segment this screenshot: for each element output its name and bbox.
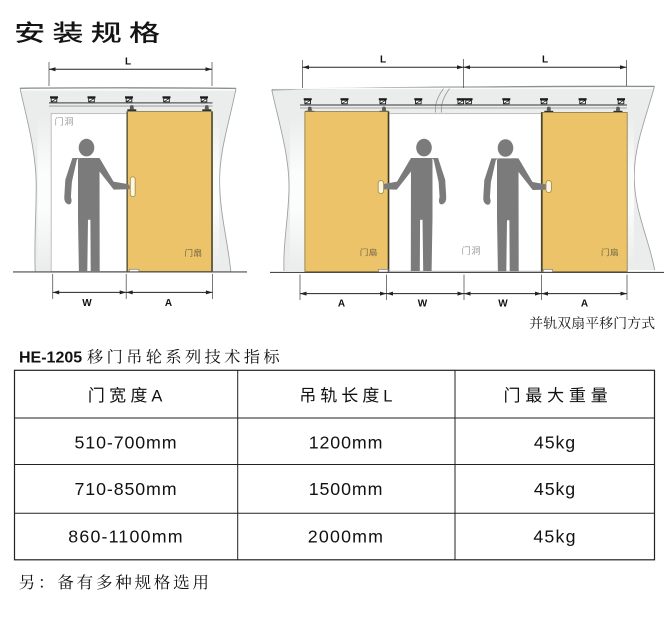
svg-text:L: L	[542, 55, 548, 66]
svg-text:W: W	[82, 298, 92, 309]
svg-text:2000mm: 2000mm	[308, 526, 384, 546]
svg-text:W: W	[498, 299, 508, 310]
svg-text:510-700mm: 510-700mm	[75, 432, 178, 452]
svg-text:1200mm: 1200mm	[309, 432, 384, 452]
svg-text:45kg: 45kg	[534, 432, 576, 452]
svg-text:A: A	[151, 387, 162, 405]
svg-text:L: L	[380, 55, 386, 66]
svg-text:710-850mm: 710-850mm	[75, 479, 178, 499]
svg-text:A: A	[338, 299, 345, 310]
svg-text:1500mm: 1500mm	[309, 479, 384, 499]
svg-text:45kg: 45kg	[533, 526, 576, 546]
svg-text:45kg: 45kg	[534, 479, 576, 499]
svg-text:W: W	[418, 299, 428, 310]
svg-text:L: L	[383, 387, 392, 405]
svg-text:HE-1205: HE-1205	[19, 350, 82, 367]
svg-text:A: A	[581, 299, 588, 310]
svg-text:A: A	[165, 298, 172, 309]
svg-text:860-1100mm: 860-1100mm	[68, 526, 183, 546]
svg-text:L: L	[125, 57, 131, 68]
